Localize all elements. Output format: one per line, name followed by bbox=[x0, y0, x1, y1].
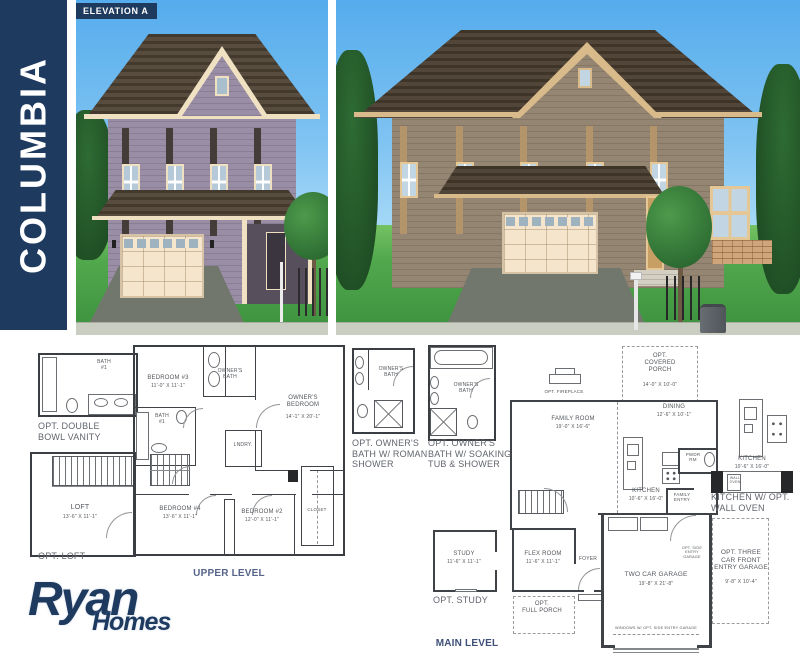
wall bbox=[224, 500, 225, 555]
wall bbox=[225, 430, 262, 431]
fixture-oval bbox=[430, 376, 439, 389]
wall bbox=[255, 347, 256, 400]
wall bbox=[234, 500, 235, 555]
wall bbox=[678, 448, 718, 450]
label-study-dims: 11'-6" X 11'-1" bbox=[447, 560, 481, 566]
wall bbox=[678, 448, 680, 472]
fixture-oval bbox=[467, 415, 478, 429]
ryan-homes-logo: Ryan Homes bbox=[28, 578, 170, 637]
wall bbox=[301, 545, 333, 546]
fixture-oval bbox=[704, 452, 715, 467]
label-bath-1: BATH #1 bbox=[155, 414, 169, 426]
label-kitchen-dims: 10'-6" X 16'-0" bbox=[629, 497, 664, 503]
caption-main-level: MAIN LEVEL bbox=[436, 638, 499, 650]
label-opt-full-porch: OPT. FULL PORCH bbox=[522, 601, 562, 615]
wall bbox=[510, 400, 718, 402]
label-windows-note: WINDOWS W/ OPT. SIDE ENTRY GARAGE bbox=[615, 626, 697, 630]
caption-opt-roman-shower: OPT. OWNER'S BATH W/ ROMAN SHOWER bbox=[352, 438, 427, 470]
cooktop bbox=[767, 415, 787, 443]
label-bedroom-4-dims: 13'-6" X 11'-1" bbox=[163, 515, 197, 521]
fixture bbox=[744, 407, 757, 420]
fixture bbox=[744, 424, 753, 433]
label-loft-dims: 13'-6" X 11'-1" bbox=[63, 515, 97, 521]
wall bbox=[224, 499, 235, 500]
label-bedroom-2: BEDROOM #2 bbox=[241, 509, 282, 516]
label-two-car-garage-dims: 19'-8" X 21'-8" bbox=[639, 582, 674, 588]
wall bbox=[433, 530, 497, 532]
label-wall-oven: WALL OVEN bbox=[730, 476, 741, 484]
dashed-line bbox=[613, 634, 699, 635]
elevation-badge-label: ELEVATION A bbox=[83, 6, 148, 16]
wall bbox=[495, 570, 497, 592]
wall bbox=[203, 396, 256, 397]
fixture bbox=[627, 444, 639, 456]
label-kitchen: KITCHEN bbox=[632, 488, 660, 495]
label-family-room-dims: 19'-0" X 16'-6" bbox=[556, 425, 591, 431]
label-bath1-vanity: BATH #1 bbox=[97, 360, 111, 372]
label-opt-bath-roman: OWNER'S BATH bbox=[379, 367, 404, 379]
wall bbox=[613, 652, 699, 653]
caption-opt-study: OPT. STUDY bbox=[433, 595, 488, 606]
caption-opt-fireplace: OPT. FIREPLACE bbox=[544, 389, 583, 394]
elevation-badge: ELEVATION A bbox=[76, 3, 157, 19]
fixture bbox=[42, 357, 57, 412]
label-closet: CLOSET bbox=[307, 507, 326, 512]
wall bbox=[368, 348, 369, 390]
label-dining: DINING bbox=[663, 404, 685, 411]
wall bbox=[225, 430, 226, 467]
page: COLUMBIA ELEVATION A bbox=[0, 0, 800, 661]
floor-plans: BATH #1OPT. DOUBLE BOWL VANITYLOFT13'-6"… bbox=[0, 0, 800, 661]
wall bbox=[333, 466, 334, 546]
label-loft: LOFT bbox=[71, 504, 90, 512]
label-family-room: FAMILY ROOM bbox=[551, 416, 594, 423]
wall bbox=[601, 513, 604, 648]
wall bbox=[613, 648, 699, 650]
wall bbox=[261, 430, 262, 467]
label-owners-bedroom-dims: 14'-1" X 20'-1" bbox=[286, 415, 321, 421]
label-family-entry: FAMILY ENTRY bbox=[674, 492, 691, 503]
wall bbox=[301, 466, 333, 467]
wall bbox=[301, 466, 302, 546]
label-powder-room: PWDR RM bbox=[686, 452, 701, 463]
caption-kitchen-wall-oven: KITCHEN W/ OPT. WALL OVEN bbox=[711, 492, 790, 513]
caption-opt-soaking-tub: OPT. OWNER'S BATH W/ SOAKING TUB & SHOWE… bbox=[428, 438, 511, 470]
wall bbox=[598, 513, 718, 515]
wall bbox=[512, 530, 514, 592]
caption-opt-loft: OPT. LOFT bbox=[38, 551, 85, 562]
caption-opt-double-bowl-vanity: OPT. DOUBLE BOWL VANITY bbox=[38, 421, 101, 442]
wall bbox=[133, 407, 196, 408]
caption-upper-level: UPPER LEVEL bbox=[193, 568, 265, 580]
label-opt-covered-porch: OPT. COVERED PORCH bbox=[644, 353, 675, 374]
fixture bbox=[627, 461, 636, 470]
wall bbox=[574, 530, 576, 564]
door-swing bbox=[544, 488, 568, 512]
wall bbox=[310, 470, 345, 471]
fixture-oval bbox=[208, 352, 220, 368]
wall bbox=[510, 528, 576, 530]
fixture-oval bbox=[151, 443, 167, 453]
door-swing bbox=[670, 515, 696, 541]
fixture-oval bbox=[114, 398, 128, 407]
label-opt-bath-soaking: OWNER'S BATH bbox=[454, 383, 479, 395]
wall-fill bbox=[288, 470, 298, 482]
fixture bbox=[455, 589, 477, 592]
fixture-oval bbox=[355, 372, 364, 385]
wall bbox=[252, 494, 296, 495]
label-opt-kitchen-dims: 10'-6" X 16'-0" bbox=[735, 465, 770, 471]
label-opt-three-car-dims: 9'-8" X 10'-4" bbox=[725, 580, 757, 586]
logo-text-homes: Homes bbox=[92, 608, 170, 637]
wall bbox=[495, 530, 497, 552]
dashed-line bbox=[617, 402, 618, 513]
fixture bbox=[640, 517, 668, 531]
label-opt-side-entry: OPT. SIDE ENTRY GARAGE bbox=[682, 546, 702, 559]
fixture bbox=[549, 374, 581, 384]
wall bbox=[576, 590, 584, 592]
label-foyer: FOYER bbox=[579, 557, 597, 563]
fixture bbox=[136, 412, 149, 460]
staircase bbox=[52, 456, 134, 486]
wall bbox=[255, 430, 256, 470]
bathtub bbox=[434, 350, 488, 365]
label-owners-bedroom: OWNER'S BEDROOM bbox=[287, 395, 319, 409]
label-flex-room: FLEX ROOM bbox=[524, 551, 561, 558]
shower bbox=[430, 408, 457, 436]
fixture-oval bbox=[430, 392, 439, 405]
wall bbox=[512, 590, 576, 592]
door-swing bbox=[578, 568, 600, 590]
label-bedroom-3-dims: 11'-0" X 11'-1" bbox=[151, 384, 185, 390]
label-two-car-garage: TWO CAR GARAGE bbox=[624, 571, 687, 579]
label-laundry: LNDRY. bbox=[234, 443, 253, 449]
wall-fill bbox=[781, 471, 793, 493]
wall bbox=[433, 530, 435, 592]
label-bedroom-4: BEDROOM #4 bbox=[159, 506, 200, 513]
label-owners-bath: OWNER'S BATH bbox=[218, 369, 243, 381]
label-opt-covered-porch-dims: 14'-0" X 10'-0" bbox=[643, 383, 678, 389]
fixture-oval bbox=[66, 398, 78, 413]
fixture bbox=[608, 517, 638, 531]
wall bbox=[666, 488, 668, 515]
wall bbox=[225, 466, 262, 467]
wall bbox=[666, 488, 694, 490]
label-study: STUDY bbox=[453, 551, 474, 558]
label-dining-dims: 12'-6" X 10'-1" bbox=[657, 413, 692, 419]
label-opt-three-car: OPT. THREE CAR FRONT ENTRY GARAGE bbox=[714, 549, 768, 572]
fixture-oval bbox=[94, 398, 108, 407]
wall-fill bbox=[711, 471, 723, 493]
wall bbox=[294, 494, 295, 555]
label-bedroom-2-dims: 12'-0" X 11'-1" bbox=[245, 518, 279, 524]
fixture-oval bbox=[357, 404, 368, 418]
wall bbox=[697, 645, 712, 648]
shower bbox=[374, 400, 403, 428]
wall bbox=[203, 347, 204, 397]
label-flex-room-dims: 11'-6" X 11'-1" bbox=[526, 560, 560, 566]
wall bbox=[52, 486, 134, 487]
fixture bbox=[555, 368, 575, 375]
wall bbox=[133, 494, 189, 495]
label-opt-kitchen: KITCHEN bbox=[738, 456, 766, 463]
label-bedroom-3: BEDROOM #3 bbox=[147, 375, 188, 382]
fixture-oval bbox=[355, 356, 364, 369]
